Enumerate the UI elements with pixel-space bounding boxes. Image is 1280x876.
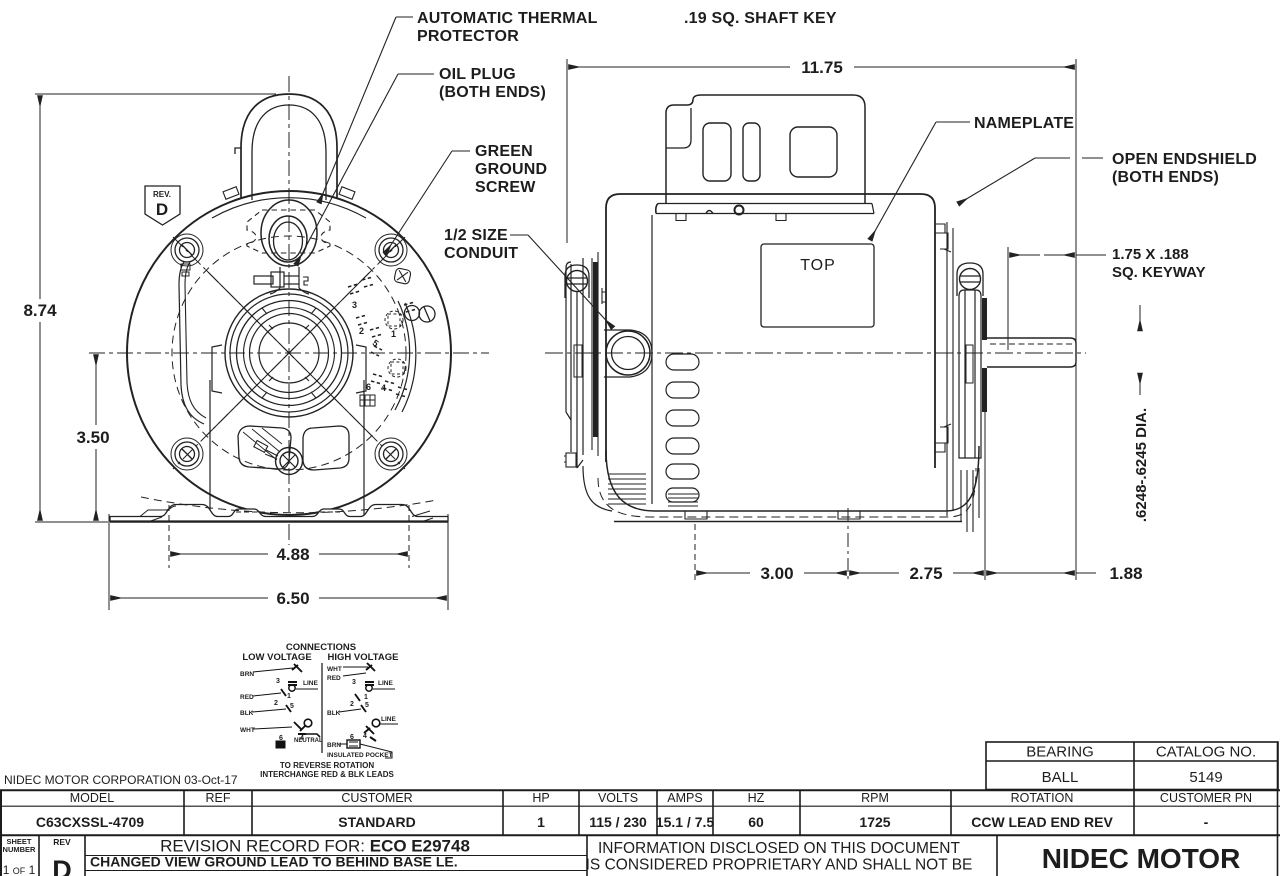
svg-text:RPM: RPM [861, 791, 889, 805]
svg-text:CUSTOMER PN: CUSTOMER PN [1160, 791, 1252, 805]
svg-text:NIDEC MOTOR CORPORATION 03-Oct: NIDEC MOTOR CORPORATION 03-Oct-17 [4, 773, 238, 787]
svg-text:BALL: BALL [1042, 769, 1079, 786]
svg-text:2: 2 [274, 700, 278, 707]
svg-text:CONDUIT: CONDUIT [444, 245, 518, 262]
svg-text:INTERCHANGE RED & BLK LEADS: INTERCHANGE RED & BLK LEADS [260, 770, 394, 779]
svg-text:3.00: 3.00 [760, 564, 793, 583]
svg-text:8.74: 8.74 [23, 301, 57, 320]
svg-text:TOP: TOP [800, 257, 836, 274]
svg-text:INSULATED POCKET: INSULATED POCKET [327, 752, 393, 759]
svg-text:3: 3 [276, 678, 280, 685]
svg-text:AMPS: AMPS [667, 791, 702, 805]
svg-text:CUSTOMER: CUSTOMER [341, 791, 412, 805]
svg-text:IS CONSIDERED PROPRIETARY AND: IS CONSIDERED PROPRIETARY AND SHALL NOT … [586, 857, 973, 874]
svg-text:CHANGED VIEW GROUND LEAD TO BE: CHANGED VIEW GROUND LEAD TO BEHIND BASE … [90, 854, 458, 870]
svg-text:TO REVERSE ROTATION: TO REVERSE ROTATION [280, 761, 374, 770]
svg-text:3: 3 [352, 300, 357, 310]
svg-text:LINE: LINE [303, 680, 318, 687]
svg-text:LOW VOLTAGE: LOW VOLTAGE [242, 652, 311, 663]
svg-text:4.88: 4.88 [276, 545, 309, 564]
svg-text:1725: 1725 [859, 814, 890, 830]
svg-text:OPEN ENDSHIELD: OPEN ENDSHIELD [1112, 151, 1257, 168]
svg-text:BLK: BLK [327, 710, 341, 717]
svg-text:HIGH VOLTAGE: HIGH VOLTAGE [328, 652, 399, 663]
svg-text:6: 6 [366, 382, 371, 392]
svg-text:PROTECTOR: PROTECTOR [417, 28, 519, 45]
svg-text:1: 1 [537, 814, 545, 830]
svg-text:2.75: 2.75 [909, 564, 942, 583]
svg-text:5149: 5149 [1189, 769, 1222, 786]
svg-text:NIDEC MOTOR: NIDEC MOTOR [1042, 843, 1241, 874]
svg-text:11.75: 11.75 [801, 58, 843, 77]
svg-text:STANDARD: STANDARD [338, 814, 416, 830]
svg-text:D: D [52, 855, 72, 876]
svg-text:60: 60 [748, 814, 764, 830]
svg-text:ROTATION: ROTATION [1011, 791, 1074, 805]
svg-text:1.88: 1.88 [1109, 564, 1142, 583]
svg-text:INFORMATION DISCLOSED ON THIS: INFORMATION DISCLOSED ON THIS DOCUMENT [598, 840, 961, 857]
svg-text:MODEL: MODEL [70, 791, 115, 805]
svg-text:AUTOMATIC THERMAL: AUTOMATIC THERMAL [417, 10, 598, 27]
svg-text:6.50: 6.50 [276, 589, 309, 608]
svg-text:D: D [156, 200, 168, 219]
svg-text:C63CXSSL-4709: C63CXSSL-4709 [36, 814, 144, 830]
svg-text:NEUTRAL: NEUTRAL [294, 738, 323, 744]
svg-text:RED: RED [327, 675, 341, 682]
svg-text:5: 5 [290, 703, 294, 710]
svg-text:4: 4 [363, 733, 367, 740]
svg-text:OIL PLUG: OIL PLUG [439, 66, 516, 83]
svg-text:(BOTH ENDS): (BOTH ENDS) [439, 84, 546, 101]
svg-text:LINE: LINE [378, 680, 393, 687]
svg-text:2: 2 [359, 326, 364, 336]
svg-text:NAMEPLATE: NAMEPLATE [974, 115, 1074, 132]
svg-text:HZ: HZ [748, 791, 765, 805]
svg-text:4: 4 [381, 383, 386, 393]
svg-text:3: 3 [352, 679, 356, 686]
svg-text:1: 1 [364, 694, 368, 701]
svg-text:RED: RED [240, 694, 254, 701]
svg-text:SCREW: SCREW [475, 179, 536, 196]
svg-text:SQ. KEYWAY: SQ. KEYWAY [1112, 264, 1206, 281]
svg-text:NUMBER: NUMBER [3, 845, 36, 854]
svg-text:1: 1 [391, 329, 396, 339]
svg-text:15.1 / 7.5: 15.1 / 7.5 [656, 814, 715, 830]
svg-text:2: 2 [350, 701, 354, 708]
svg-text:1/2 SIZE: 1/2 SIZE [444, 227, 508, 244]
svg-text:REF: REF [206, 791, 231, 805]
svg-text:-: - [1204, 814, 1209, 830]
svg-text:5: 5 [371, 338, 381, 349]
svg-text:5: 5 [365, 702, 369, 709]
svg-text:CATALOG NO.: CATALOG NO. [1156, 744, 1256, 761]
svg-text:CCW LEAD END REV: CCW LEAD END REV [971, 814, 1113, 830]
svg-text:1: 1 [287, 693, 291, 700]
svg-text:(BOTH ENDS): (BOTH ENDS) [1112, 169, 1219, 186]
svg-text:BRN: BRN [327, 742, 341, 749]
svg-text:.19 SQ. SHAFT KEY: .19 SQ. SHAFT KEY [684, 10, 837, 27]
svg-text:REV.: REV. [153, 190, 171, 199]
svg-text:1.75 X .188: 1.75 X .188 [1112, 246, 1189, 263]
svg-text:LINE: LINE [381, 716, 396, 723]
svg-text:3.50: 3.50 [76, 428, 109, 447]
svg-text:BEARING: BEARING [1026, 744, 1094, 761]
svg-text:1 OF 1: 1 OF 1 [3, 863, 36, 876]
svg-text:.6248-.6245 DIA.: .6248-.6245 DIA. [1133, 408, 1150, 522]
svg-text:BRN: BRN [240, 671, 254, 678]
svg-text:115 / 230: 115 / 230 [589, 814, 647, 830]
svg-text:REV: REV [53, 837, 71, 847]
svg-text:VOLTS: VOLTS [598, 791, 638, 805]
svg-text:GROUND: GROUND [475, 161, 547, 178]
svg-text:GREEN: GREEN [475, 143, 533, 160]
svg-text:WHT: WHT [327, 666, 342, 673]
svg-text:WHT: WHT [240, 727, 255, 734]
svg-text:BLK: BLK [240, 710, 254, 717]
svg-text:HP: HP [532, 791, 549, 805]
